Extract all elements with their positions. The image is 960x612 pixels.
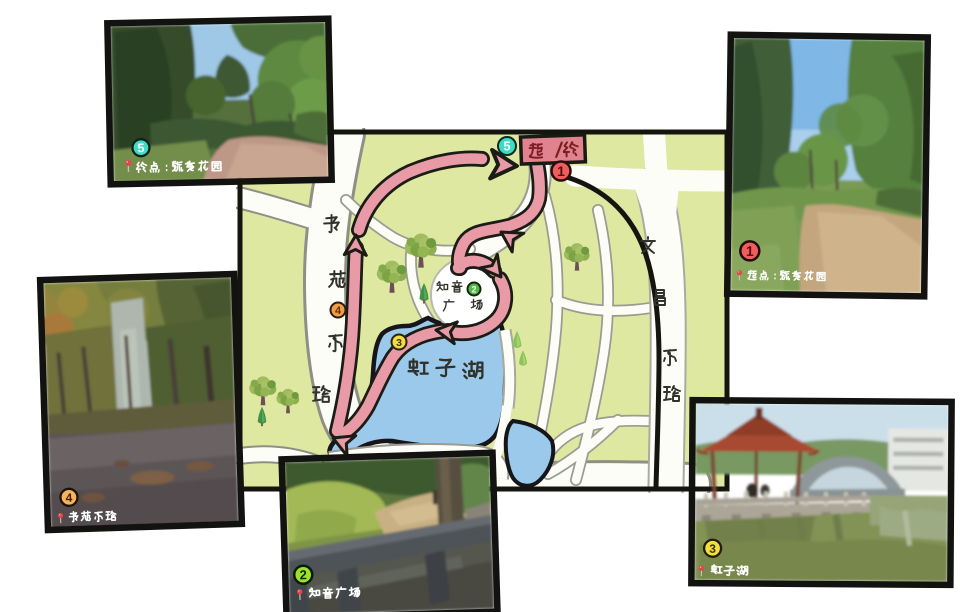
svg-text:4: 4: [65, 491, 72, 505]
svg-text:5: 5: [137, 141, 144, 155]
svg-text:5: 5: [503, 139, 510, 154]
svg-text:3: 3: [709, 542, 716, 556]
svg-text:4: 4: [335, 305, 342, 317]
svg-text:1: 1: [746, 243, 754, 259]
svg-text:3: 3: [396, 337, 402, 349]
svg-text:2: 2: [471, 285, 476, 295]
svg-text:1: 1: [557, 163, 565, 179]
svg-text:2: 2: [299, 567, 307, 582]
